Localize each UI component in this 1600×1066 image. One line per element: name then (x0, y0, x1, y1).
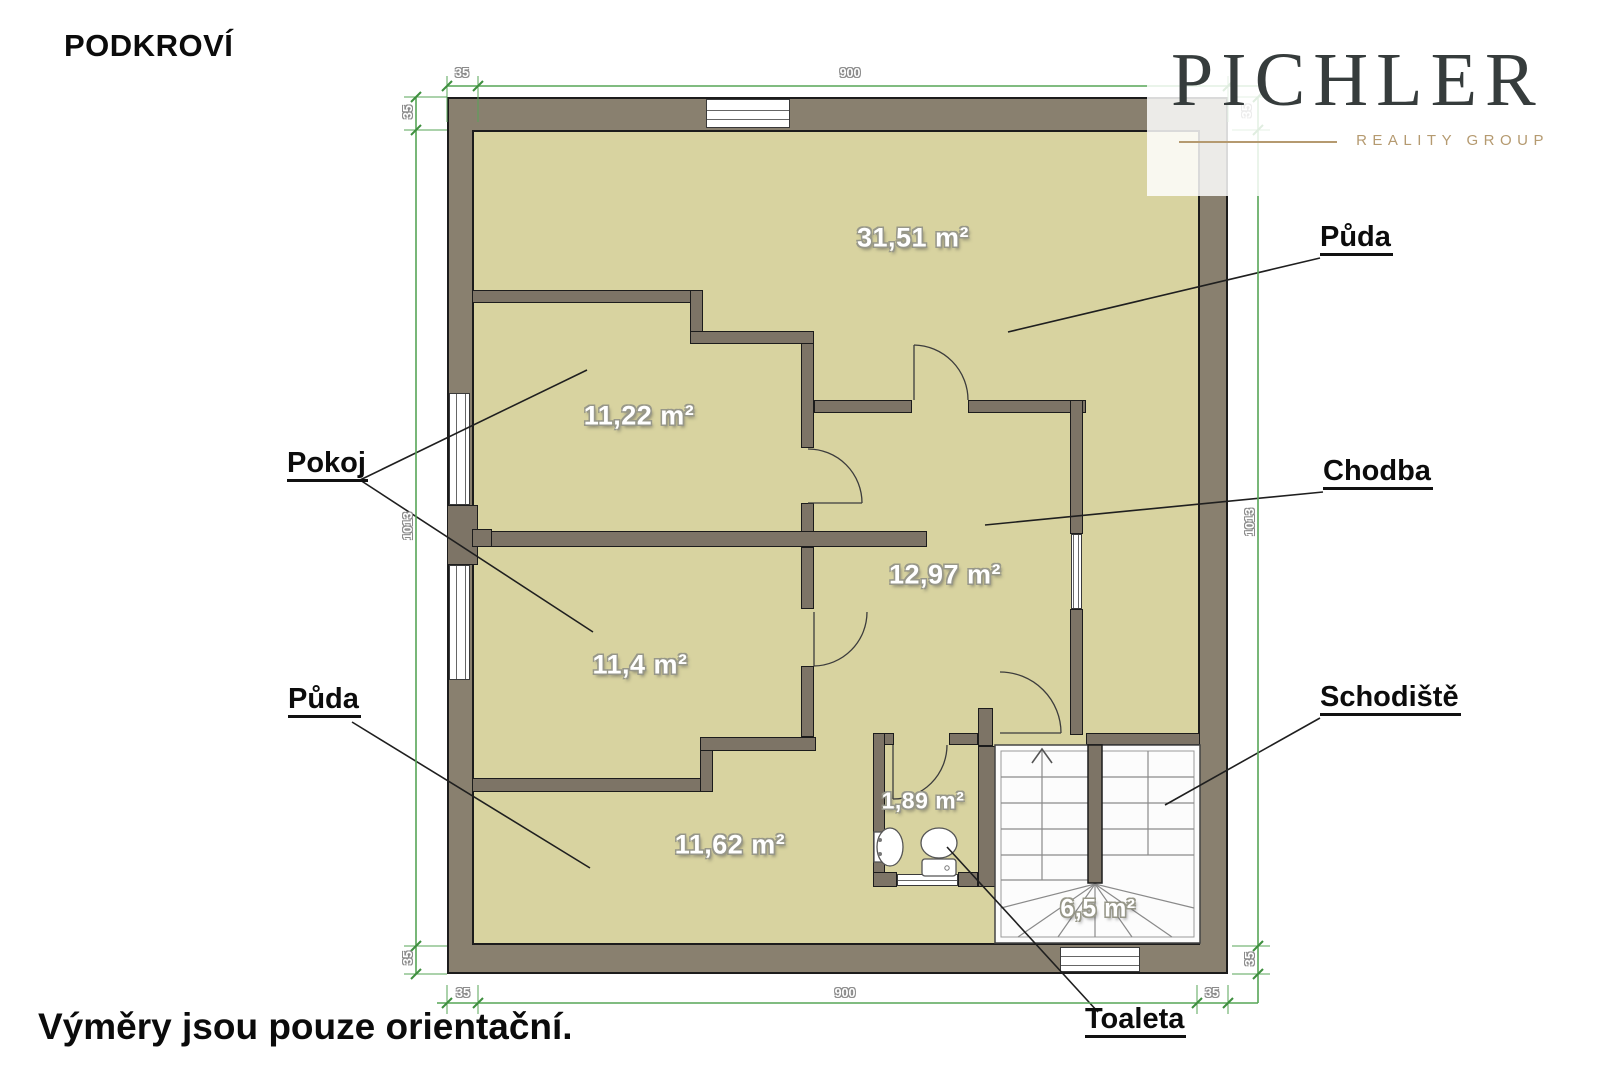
logo-rule (1179, 141, 1337, 143)
dim-top-wall: 35 (448, 66, 476, 80)
room-area-pokoj-1: 11,22 m² (584, 401, 695, 432)
room-area-schodiste: 6,5 m² (1060, 895, 1135, 924)
room-area-toaleta: 1,89 m² (882, 788, 965, 815)
room-area-pokoj-2: 11,4 m² (592, 650, 687, 681)
room-area-puda-bottom: 11,62 m² (675, 830, 786, 861)
callout-schodiste: Schodiště (1320, 682, 1461, 716)
room-area-chodba: 12,97 m² (889, 560, 1001, 591)
footnote: Výměry jsou pouze orientační. (38, 1006, 573, 1048)
dim-bottom-width: 900 (815, 986, 875, 1000)
room-area-puda-top: 31,51 m² (857, 223, 969, 254)
sink-icon (874, 828, 903, 866)
callout-puda-bottom: Půda (288, 684, 361, 718)
pichler-logo: PICHLER REALITY GROUP (1147, 28, 1565, 196)
dim-left-height: 1013 (401, 498, 415, 554)
logo-subtitle-text: REALITY GROUP (1356, 132, 1549, 149)
dim-right-height: 1013 (1243, 494, 1257, 550)
callout-chodba: Chodba (1323, 456, 1433, 490)
dim-left-wall-top: 35 (401, 98, 415, 126)
dim-right-wall-bottom: 35 (1243, 945, 1257, 973)
dim-left-wall-bottom: 35 (401, 944, 415, 972)
dim-top-width: 900 (820, 66, 880, 80)
callout-puda-top: Půda (1320, 222, 1393, 256)
dim-bottom-wall-right: 35 (1198, 986, 1226, 1000)
callout-pokoj: Pokoj (287, 448, 368, 482)
logo-brand-text: PICHLER (1171, 42, 1544, 118)
dim-bottom-wall-left: 35 (449, 986, 477, 1000)
callout-toaleta: Toaleta (1085, 1004, 1186, 1038)
floorplan-page: PODKROVÍ (0, 0, 1600, 1066)
